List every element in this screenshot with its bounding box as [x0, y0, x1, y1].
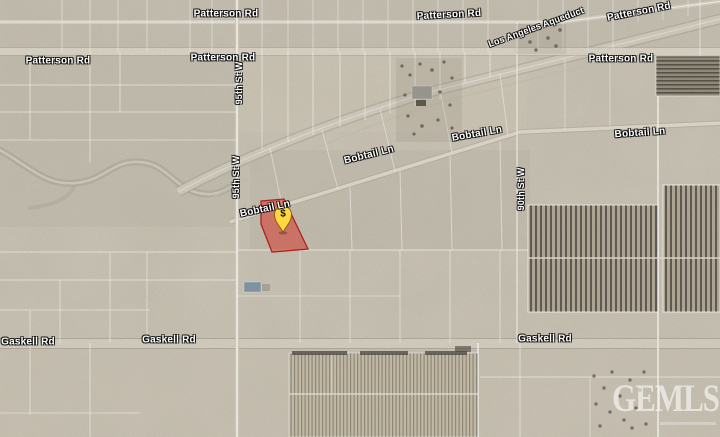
- road-label-95th-st-upper: 95th St W: [234, 62, 244, 105]
- map-canvas: [0, 0, 720, 437]
- road-label-gaskell-right: Gaskell Rd: [518, 334, 572, 345]
- satellite-map[interactable]: Patterson Rd Patterson Rd Patterson Rd L…: [0, 0, 720, 437]
- mls-watermark-subtext: [660, 422, 716, 425]
- terrain-grain: [0, 0, 720, 437]
- road-label-patterson-top-1: Patterson Rd: [194, 9, 259, 20]
- road-label-patterson-right: Patterson Rd: [589, 54, 654, 65]
- road-label-patterson-left: Patterson Rd: [26, 56, 91, 67]
- road-label-patterson-mid: Patterson Rd: [191, 53, 256, 64]
- mls-watermark: GEMLS: [612, 376, 719, 421]
- road-label-90th-st: 90th St W: [516, 168, 526, 211]
- road-label-gaskell-left: Gaskell Rd: [1, 337, 55, 348]
- road-label-95th-st-lower: 95th St W: [231, 156, 241, 199]
- road-label-gaskell-mid: Gaskell Rd: [142, 335, 196, 346]
- price-pin-symbol[interactable]: $: [280, 209, 286, 220]
